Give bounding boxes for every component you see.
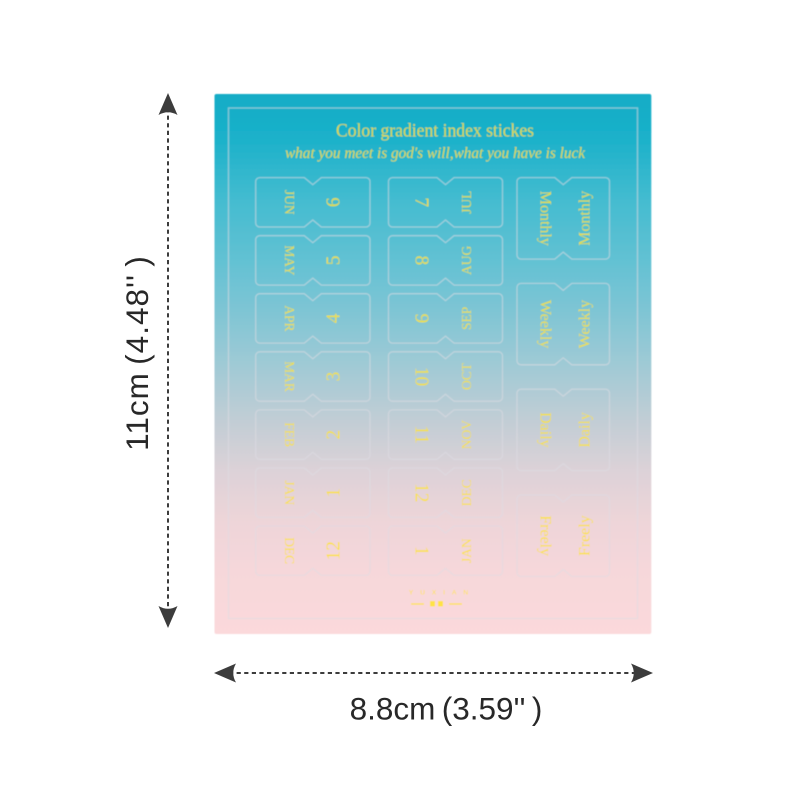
- svg-text:Freely: Freely: [537, 515, 554, 556]
- svg-text:OCT: OCT: [459, 362, 474, 390]
- svg-text:Monthly: Monthly: [537, 191, 554, 246]
- svg-text:2: 2: [323, 430, 344, 440]
- svg-text:JUN: JUN: [282, 190, 297, 215]
- svg-text:JAN: JAN: [459, 538, 474, 563]
- svg-text:AUG: AUG: [459, 246, 474, 275]
- svg-text:MAY: MAY: [282, 245, 297, 276]
- svg-text:Color gradient index stickes: Color gradient index stickes: [336, 121, 534, 142]
- svg-text:Freely: Freely: [577, 515, 594, 556]
- svg-text:FEB: FEB: [282, 422, 297, 447]
- svg-text:8.8cm (3.59'' ): 8.8cm (3.59'' ): [350, 691, 543, 727]
- svg-text:12: 12: [323, 541, 344, 561]
- svg-text:3: 3: [323, 372, 344, 382]
- svg-text:Weekly: Weekly: [537, 300, 554, 348]
- svg-text:Daily: Daily: [577, 412, 594, 448]
- svg-text:APR: APR: [282, 305, 297, 331]
- svg-text:1: 1: [323, 488, 344, 498]
- svg-text:JUL: JUL: [459, 191, 474, 214]
- svg-text:JAN: JAN: [282, 480, 297, 505]
- svg-text:1: 1: [411, 546, 432, 556]
- svg-text:Weekly: Weekly: [577, 300, 594, 348]
- svg-text:what you meet is god's will,wh: what you meet is god's will,what you hav…: [285, 145, 586, 162]
- svg-text:7: 7: [411, 197, 432, 207]
- svg-text:YUXIAN: YUXIAN: [409, 590, 475, 597]
- svg-text:DEC: DEC: [459, 479, 474, 506]
- svg-text:5: 5: [323, 256, 344, 266]
- svg-text:11cm (4.48'' ): 11cm (4.48'' ): [119, 255, 155, 451]
- svg-text:SEP: SEP: [459, 307, 474, 330]
- svg-text:6: 6: [323, 197, 344, 207]
- svg-text:11: 11: [411, 425, 432, 444]
- svg-text:Daily: Daily: [537, 412, 554, 448]
- svg-text:Monthly: Monthly: [577, 191, 594, 246]
- svg-text:12: 12: [411, 483, 432, 503]
- svg-text:4: 4: [323, 313, 344, 323]
- svg-text:9: 9: [411, 314, 432, 324]
- svg-text:8: 8: [411, 256, 432, 266]
- svg-text:DEC: DEC: [282, 537, 297, 564]
- svg-text:NOV: NOV: [459, 420, 474, 449]
- svg-text:10: 10: [411, 367, 432, 387]
- svg-text:MAR: MAR: [282, 361, 297, 392]
